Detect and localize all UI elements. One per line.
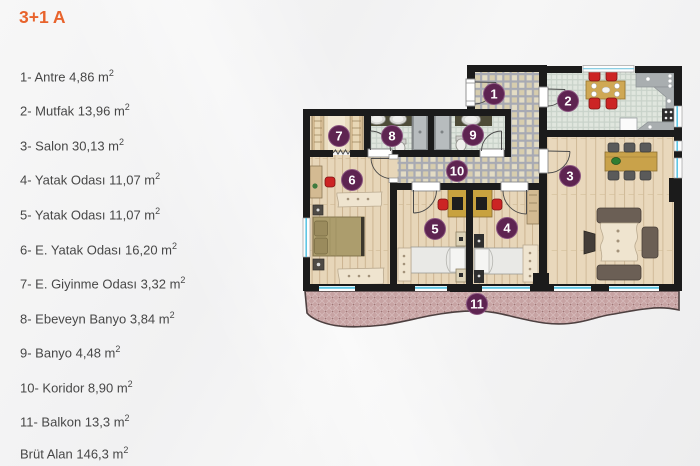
- svg-text:9: 9: [469, 128, 476, 143]
- svg-text:1: 1: [490, 87, 497, 102]
- svg-text:4: 4: [503, 221, 511, 236]
- svg-text:11: 11: [470, 297, 484, 312]
- svg-text:3: 3: [566, 169, 573, 184]
- svg-text:6: 6: [348, 173, 355, 188]
- svg-text:8: 8: [388, 129, 395, 144]
- svg-text:2: 2: [564, 94, 571, 109]
- svg-text:7: 7: [335, 129, 342, 144]
- svg-text:5: 5: [431, 222, 438, 237]
- svg-text:10: 10: [450, 164, 464, 179]
